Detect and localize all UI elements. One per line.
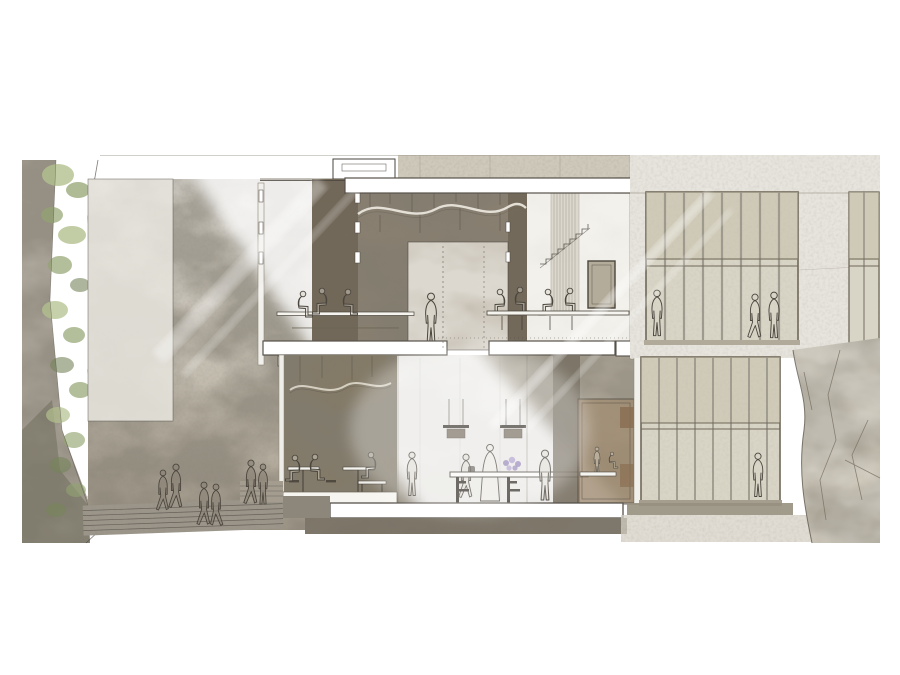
narrow-window <box>849 192 879 343</box>
architectural-section-canvas <box>0 0 900 675</box>
left-cut-wall <box>258 183 264 365</box>
window-sill <box>644 340 800 345</box>
wood-panel-2 <box>620 464 634 487</box>
facade-plinth <box>627 503 793 515</box>
upper-floor <box>258 178 646 366</box>
wall-light-panel <box>88 179 173 421</box>
terrace-edge <box>283 496 330 518</box>
second-floor-slab-left <box>263 341 447 355</box>
stair-hall <box>527 179 630 350</box>
wood-panel-1 <box>620 407 634 428</box>
section-drawing <box>0 0 900 675</box>
lower-curtain-wall <box>639 357 782 506</box>
roof-slab <box>345 178 631 193</box>
upper-curtain-wall <box>644 192 800 345</box>
balcony-counter <box>487 311 629 315</box>
upper-room-dark-wall <box>312 179 358 350</box>
right-rock <box>793 338 880 543</box>
inner-counter <box>580 472 616 476</box>
